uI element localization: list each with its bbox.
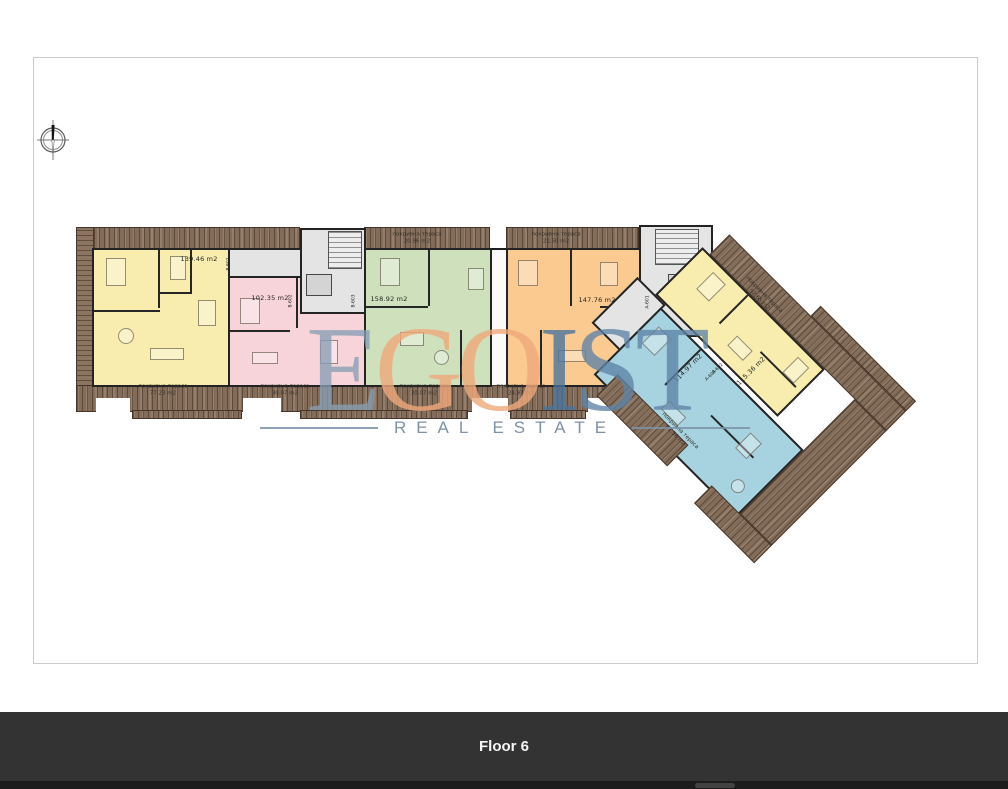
partition-wall (540, 330, 542, 385)
furniture (252, 352, 278, 364)
furniture (150, 348, 184, 360)
area-label: 158.92 m2 (370, 295, 407, 303)
scrollbar-thumb[interactable] (695, 783, 735, 788)
terrace-area: 21.50 m2 (531, 239, 580, 246)
terrace-word: покривна тераса (138, 384, 187, 391)
furniture (600, 262, 618, 286)
furniture (518, 260, 538, 286)
terrace-label: покривна тераса 21.50 m2 (531, 232, 580, 247)
terrace-deck-step (300, 410, 468, 419)
unit-tag: B-602 (289, 294, 294, 307)
furniture (198, 300, 216, 326)
furniture (106, 258, 126, 286)
terrace-word: покривна тераса (531, 232, 580, 239)
terrace-area: 24.97 m2 (496, 391, 545, 398)
terrace-area: 30.07 m2 (260, 391, 309, 398)
furniture (380, 258, 400, 286)
furniture (320, 340, 338, 364)
deck-notch (96, 398, 130, 412)
deck-notch (472, 398, 508, 412)
corridor-core-b (228, 248, 302, 278)
terrace-word: покривна тераса (496, 384, 545, 391)
partition-wall (158, 250, 160, 308)
furniture (434, 350, 449, 365)
partition-wall (94, 310, 160, 312)
terrace-word: покривна тераса (399, 384, 448, 391)
app-window: { "footer": { "label": "Floor 6" }, "wat… (0, 0, 1008, 789)
terrace-area: 77.23 m2 (138, 391, 187, 398)
terrace-label: покривна тераса 77.23 m2 (138, 384, 187, 399)
partition-wall (230, 330, 290, 332)
partition-wall (366, 306, 428, 308)
partition-wall (428, 250, 430, 306)
partition-wall (570, 250, 572, 306)
furniture (118, 328, 134, 344)
terrace-word: покривна тераса (392, 232, 441, 239)
partition-wall (296, 278, 298, 328)
floor-bar: Floor 6 (0, 712, 1008, 781)
terrace-label: покривна тераса 24.97 m2 (496, 384, 545, 399)
terrace-label: покривна тераса 30.07 m2 (260, 384, 309, 399)
area-label: 139.46 m2 (180, 255, 217, 263)
unit-tag: B-601 (227, 257, 232, 270)
unit-tag: B-603 (352, 294, 357, 307)
unit-tag: A-601 (646, 295, 651, 308)
terrace-word: покривна тераса (260, 384, 309, 391)
furniture (558, 350, 586, 362)
terrace-label: покривна тераса 20.96 m2 (392, 232, 441, 247)
staircase (328, 231, 362, 269)
bottom-scrollbar-track[interactable] (0, 781, 1008, 789)
elevator (306, 274, 332, 296)
partition-wall (160, 292, 190, 294)
terrace-area: 20.96 m2 (392, 239, 441, 246)
deck-notch (243, 398, 281, 412)
floor-bar-label: Floor 6 (479, 738, 529, 755)
service-rooms (492, 250, 506, 385)
area-label: 147.76 m2 (578, 296, 615, 304)
terrace-area: 30.07 m2 (399, 391, 448, 398)
furniture (400, 332, 424, 346)
compass-icon (36, 118, 70, 162)
terrace-deck-step (510, 410, 586, 419)
area-label: 102.35 m2 (251, 294, 288, 302)
furniture (468, 268, 484, 290)
terrace-deck-step (132, 410, 242, 419)
partition-wall (460, 330, 462, 385)
terrace-label: покривна тераса 30.07 m2 (399, 384, 448, 399)
